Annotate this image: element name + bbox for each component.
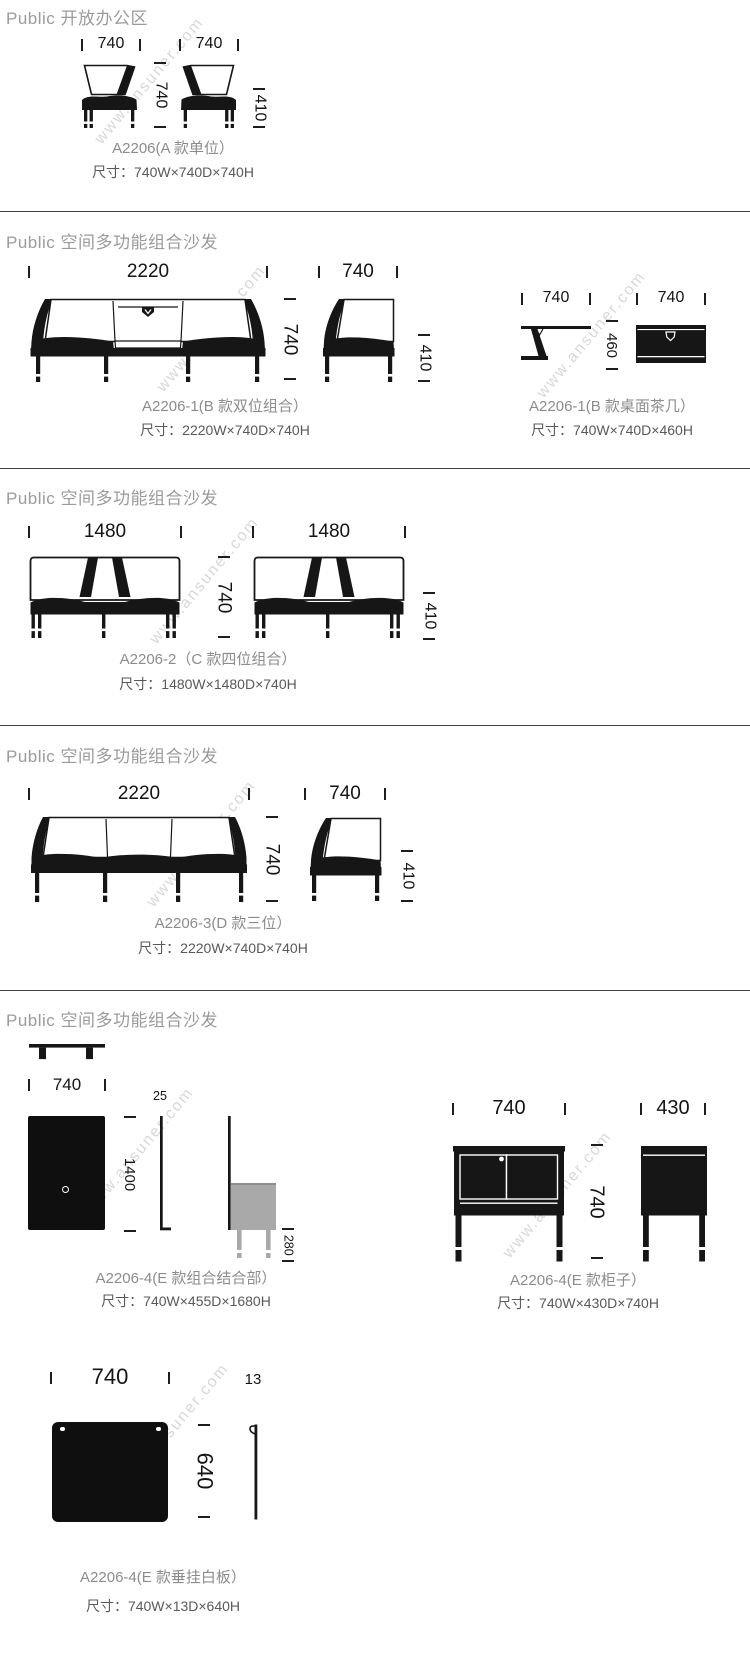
model-size: 尺寸：740W×13D×640H [33,1596,293,1616]
dim-value: 740 [523,290,590,307]
model-caption: A2206-1(B 款双位组合） [95,395,355,416]
furniture-spec-sheet: www.ansuner.com www.ansuner.com www.ansu… [0,0,750,1658]
dim-cabinet-height: 740 [587,1144,607,1259]
dim-board-thickness: 13 [240,1372,266,1387]
dim-depth: 740 [150,62,170,128]
model-caption: A2206-4(E 款组合结合部） [56,1267,316,1288]
dim-panel-width: 740 [28,1076,106,1094]
dim-tick [284,298,296,300]
dim-value: 410 [416,345,432,372]
dim-tick [218,636,230,638]
dim-value: 740 [30,1076,105,1094]
dim-panel-height: 1400 [120,1116,140,1232]
dim-value: 740 [263,843,282,875]
dim-leg-height: 280 [278,1228,298,1262]
dim-tick [266,900,278,902]
bench-top-view-drawing [29,1043,105,1062]
dim-tick [418,334,430,336]
dim-tick [282,1228,294,1230]
dim-sofa-width: 2220 [28,784,250,804]
dim-value: 740 [152,82,168,109]
dim-tick [606,320,618,322]
dim-value: 740 [454,1098,565,1119]
sofa-back-to-back-drawing [28,556,182,638]
section-2-header: Public 空间多功能组合沙发 [6,228,218,253]
panel-with-cabinet-side-drawing [226,1116,278,1262]
model-size: 尺寸：740W×740D×460H [482,420,742,440]
dim-tick [704,1103,706,1115]
dim-value: 2220 [30,784,249,804]
dim-tick [423,638,435,640]
model-size: 尺寸：740W×740D×740H [43,162,303,182]
dim-tick [248,788,250,800]
dim-value: 740 [215,581,234,613]
sofa-side-view-drawing [306,816,384,902]
section-divider [0,725,750,726]
dim-sofa-width: 2220 [28,262,268,282]
section-divider [0,990,750,991]
dim-value: 410 [399,863,415,890]
dim-table-front-width: 740 [636,290,706,307]
section-divider [0,211,750,212]
dim-tick [218,556,230,558]
sofa-back-to-back-drawing [252,556,406,638]
model-caption: A2206-4(E 款柜子） [448,1269,708,1290]
dim-tick [253,88,265,90]
model-size: 尺寸：1480W×1480D×740H [78,674,338,694]
dim-tick [154,126,166,128]
dim-value: 640 [193,1453,215,1490]
dim-tick [396,266,398,278]
dim-value: 740 [52,1366,169,1389]
chair-side-view-mirrored-drawing [179,64,237,128]
section-3-header: Public 空间多功能组合沙发 [6,484,218,509]
dim-value: 1480 [30,522,181,542]
hanging-hole [60,1427,65,1432]
section-1-header: Public 开放办公区 [6,4,148,29]
dim-tick [198,1516,210,1518]
dim-cabinet-width: 740 [452,1098,566,1119]
dim-width-left: 1480 [28,522,182,542]
dim-seat-height: 410 [414,334,434,382]
dim-tick [139,39,141,51]
model-caption: A2206(A 款单位） [43,137,303,158]
dim-value: 740 [83,36,140,53]
dim-table-height: 460 [602,320,622,370]
section-4-header: Public 空间多功能组合沙发 [6,742,218,767]
dim-table-side-width: 740 [521,290,591,307]
dim-tick [266,816,278,818]
dim-width-left: 740 [81,36,141,53]
dim-tick [606,368,618,370]
dim-value: 2220 [30,262,267,282]
dim-seat-height: 410 [419,592,439,640]
dim-value: 430 [642,1098,705,1119]
dim-tick [180,526,182,538]
dim-value: 740 [181,36,238,53]
section-divider [0,468,750,469]
dim-tick [404,526,406,538]
model-size: 尺寸：2220W×740D×740H [93,938,353,958]
section-5-header: Public 空间多功能组合沙发 [6,1006,218,1031]
dim-width-right: 740 [179,36,239,53]
dim-tick [401,850,413,852]
dim-tick [591,1257,603,1259]
hanging-hole [156,1427,161,1432]
dim-tick [104,1079,106,1091]
dim-tick [284,378,296,380]
model-size: 尺寸：2220W×740D×740H [95,420,355,440]
dim-tick [266,266,268,278]
dim-tick [401,900,413,902]
dim-tick [418,380,430,382]
dim-value: 1400 [123,1157,138,1190]
dim-tick [704,293,706,305]
dim-value: 410 [251,95,267,122]
dim-tick [253,126,265,128]
dim-tick [282,1260,294,1262]
tea-table-front-drawing [636,325,706,365]
dim-tick [124,1116,136,1118]
whiteboard-side-drawing [245,1422,261,1522]
dim-board-height: 640 [194,1424,214,1518]
panel-side-view-drawing [152,1116,172,1233]
model-caption: A2206-2（C 款四位组合） [78,648,338,669]
dim-value: 740 [587,1185,607,1218]
chair-side-view-drawing [81,64,139,128]
dim-tick [124,1230,136,1232]
panel-hole [62,1186,69,1193]
dim-tick [423,592,435,594]
sofa-three-seat-front-drawing [28,816,250,902]
cabinet-front-drawing [453,1146,565,1262]
dim-board-width: 740 [50,1366,170,1389]
dim-width-right: 1480 [252,522,406,542]
dim-tick [198,1424,210,1426]
dim-depth: 740 [214,556,234,638]
panel-front-drawing [28,1116,105,1230]
dim-value: 1480 [254,522,405,542]
dim-value: 740 [306,784,385,804]
dim-tick [237,39,239,51]
dim-seat-height: 410 [397,850,417,902]
sofa-two-seat-front-drawing [28,298,268,382]
model-size: 尺寸：740W×455D×1680H [56,1291,316,1311]
dim-value: 740 [320,262,397,282]
dim-tick [589,293,591,305]
cantilever-table-side-drawing [521,325,591,365]
model-caption: A2206-3(D 款三位） [93,912,353,933]
cabinet-side-drawing [641,1146,707,1262]
dim-tick [564,1103,566,1115]
dim-panel-thickness: 25 [150,1090,170,1103]
dim-sofa-height: 740 [280,298,300,380]
dim-value: 410 [421,603,437,630]
dim-tick [154,62,166,64]
model-caption: A2206-1(B 款桌面茶几） [482,395,742,416]
whiteboard-front-drawing [52,1422,168,1522]
dim-value: 740 [638,290,705,307]
model-size: 尺寸：740W×430D×740H [448,1293,708,1313]
dim-sofa-side-width: 740 [304,784,386,804]
dim-tick [591,1144,603,1146]
dim-value: 740 [281,323,300,355]
dim-sofa-side-width: 740 [318,262,398,282]
dim-tick [384,788,386,800]
dim-value: 460 [605,332,620,357]
dim-seat-height: 410 [249,88,269,128]
dim-value: 280 [282,1235,295,1256]
dim-sofa-height: 740 [262,816,282,902]
dim-cabinet-depth: 430 [640,1098,706,1119]
sofa-side-view-drawing [319,298,397,382]
dim-tick [168,1372,170,1384]
model-caption: A2206-4(E 款垂挂白板） [33,1566,293,1587]
